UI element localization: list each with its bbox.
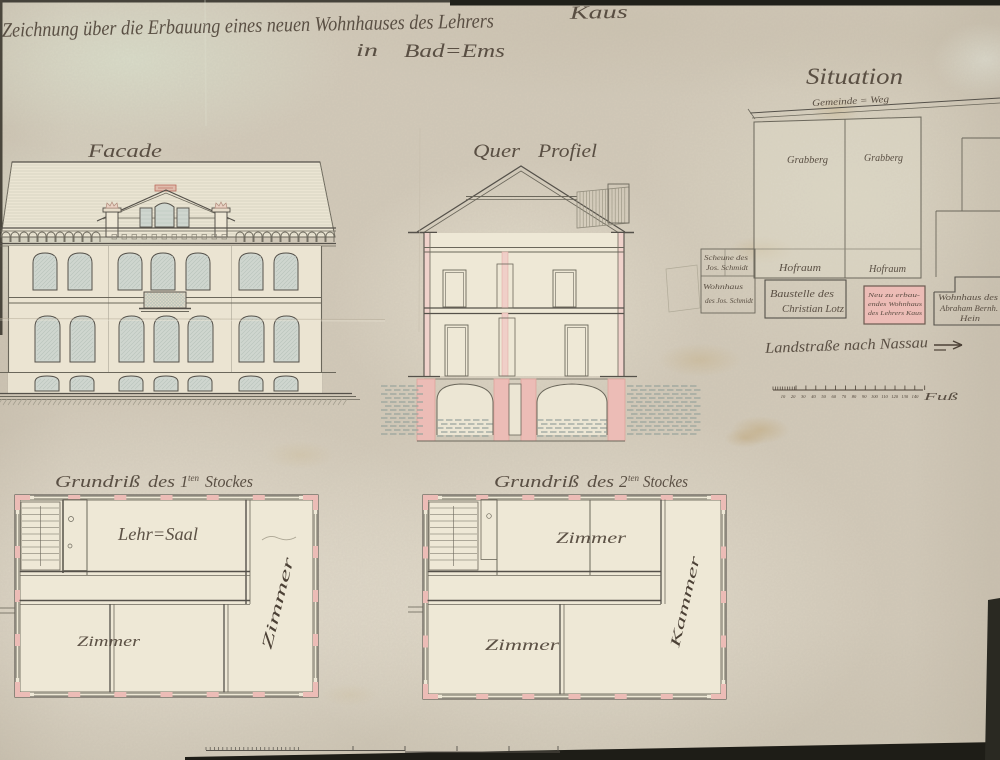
- svg-text:Zimmer: Zimmer: [556, 530, 627, 547]
- svg-text:Lehr=Saal: Lehr=Saal: [117, 524, 198, 544]
- svg-text:Fuß: Fuß: [922, 391, 959, 403]
- svg-text:des: des: [587, 472, 614, 491]
- svg-text:in: in: [356, 40, 378, 60]
- svg-text:Hofraum: Hofraum: [868, 264, 906, 275]
- svg-text:ten: ten: [628, 473, 639, 483]
- svg-text:10: 10: [781, 394, 786, 399]
- svg-text:30: 30: [801, 394, 806, 399]
- svg-text:endes Wohnhaus: endes Wohnhaus: [868, 301, 923, 308]
- svg-text:Stockes: Stockes: [643, 472, 688, 491]
- svg-text:140: 140: [912, 394, 920, 399]
- svg-text:40: 40: [811, 394, 816, 399]
- svg-text:130: 130: [901, 394, 909, 399]
- svg-text:90: 90: [862, 394, 867, 399]
- svg-text:Christian Lotz: Christian Lotz: [782, 304, 844, 315]
- svg-text:Grundriß: Grundriß: [55, 472, 141, 491]
- svg-text:Hofraum: Hofraum: [778, 263, 822, 274]
- svg-text:Jos. Schmidt: Jos. Schmidt: [706, 264, 749, 272]
- svg-text:Grabberg: Grabberg: [864, 152, 903, 164]
- svg-text:Neu zu erbau-: Neu zu erbau-: [867, 292, 920, 299]
- svg-text:Wohnhaus: Wohnhaus: [703, 282, 743, 291]
- svg-text:Kaus: Kaus: [568, 3, 628, 24]
- svg-text:Situation: Situation: [806, 64, 903, 89]
- svg-text:60: 60: [832, 394, 837, 399]
- svg-text:50: 50: [821, 394, 826, 399]
- svg-text:Stockes: Stockes: [205, 472, 253, 491]
- svg-text:Grundriß: Grundriß: [494, 472, 580, 491]
- svg-text:des Jos. Schmidt: des Jos. Schmidt: [705, 297, 754, 305]
- svg-text:des Lehrers Kaus: des Lehrers Kaus: [868, 310, 923, 317]
- svg-text:120: 120: [891, 394, 899, 399]
- svg-text:2: 2: [619, 472, 628, 491]
- svg-text:100: 100: [871, 394, 879, 399]
- svg-text:Profiel: Profiel: [537, 141, 597, 162]
- svg-text:des: des: [148, 472, 175, 491]
- svg-text:Bad=Ems: Bad=Ems: [404, 42, 505, 62]
- svg-text:Grabberg: Grabberg: [787, 154, 828, 166]
- svg-text:Zimmer: Zimmer: [77, 634, 140, 650]
- svg-text:Hein: Hein: [959, 313, 980, 323]
- svg-text:Quer: Quer: [473, 141, 521, 162]
- svg-text:20: 20: [791, 394, 796, 399]
- svg-text:80: 80: [852, 394, 857, 399]
- svg-text:Zimmer: Zimmer: [485, 637, 560, 654]
- svg-text:70: 70: [842, 394, 847, 399]
- svg-text:ten: ten: [188, 473, 199, 483]
- svg-text:Facade: Facade: [87, 141, 162, 162]
- svg-text:110: 110: [881, 394, 888, 399]
- svg-text:Baustelle des: Baustelle des: [770, 289, 834, 300]
- svg-text:Abraham Bernh.: Abraham Bernh.: [939, 303, 998, 313]
- svg-text:Scheune des: Scheune des: [704, 254, 748, 262]
- svg-text:Wohnhaus des: Wohnhaus des: [938, 292, 999, 302]
